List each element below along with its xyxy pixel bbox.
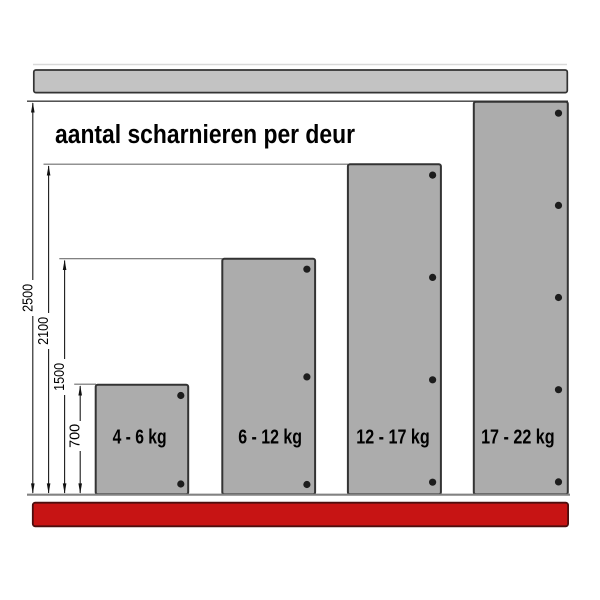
svg-text:4 - 6 kg: 4 - 6 kg <box>113 426 167 449</box>
svg-text:2500: 2500 <box>19 284 36 312</box>
svg-text:17 - 22 kg: 17 - 22 kg <box>481 426 554 449</box>
svg-text:700: 700 <box>67 424 84 448</box>
svg-text:2100: 2100 <box>35 317 52 345</box>
svg-text:6 - 12 kg: 6 - 12 kg <box>238 426 302 449</box>
svg-text:12 - 17 kg: 12 - 17 kg <box>356 426 429 449</box>
svg-text:aantal scharnieren per deur: aantal scharnieren per deur <box>55 121 355 149</box>
svg-text:1500: 1500 <box>51 363 68 391</box>
